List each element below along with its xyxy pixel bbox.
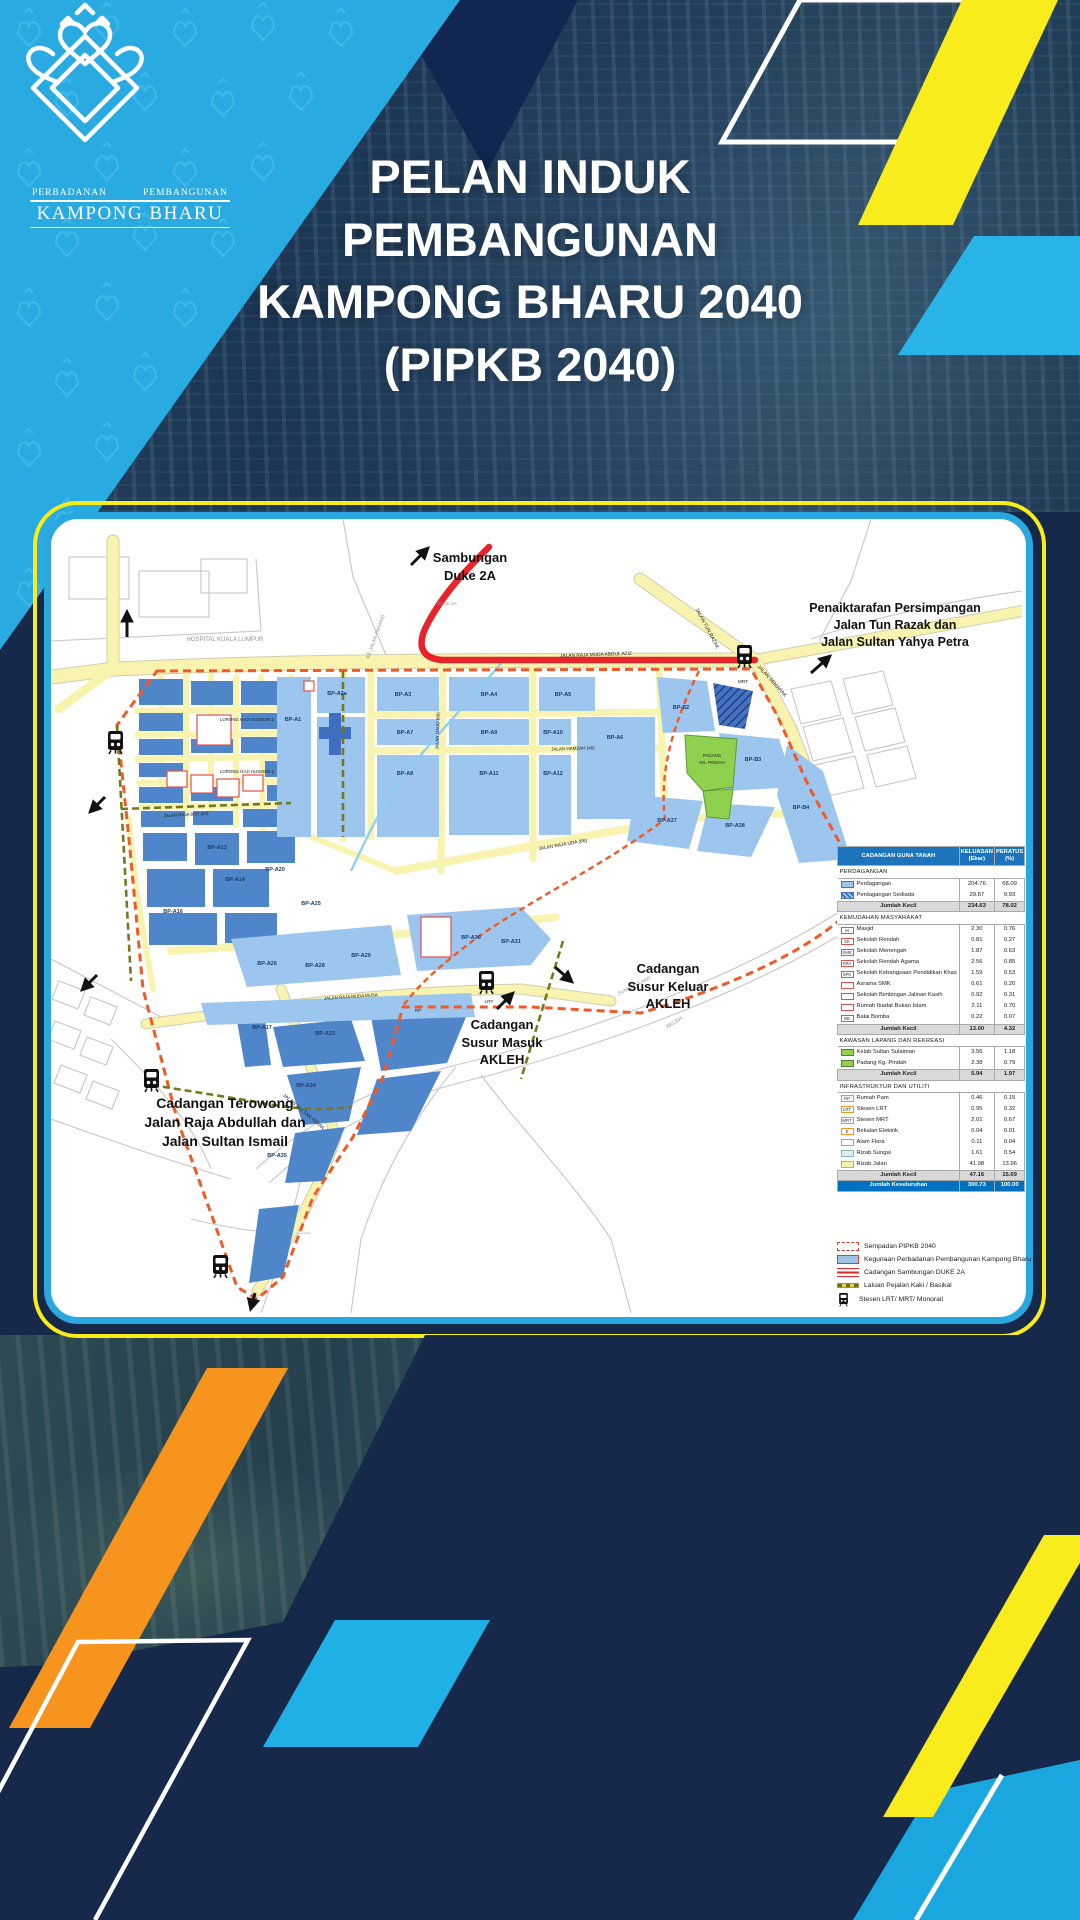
symbol-legend-row: Cadangan Sambungan DUKE 2A — [837, 1268, 1032, 1277]
legend-row: Kelab Sultan Sulaiman3.561.18 — [838, 1047, 1025, 1059]
map-label: BP-A3 — [395, 692, 412, 698]
legend-header-cell: PERATUS(%) — [994, 847, 1024, 866]
symbol-legend-row: Stesen LRT/ MRT/ Monorail — [837, 1293, 1032, 1307]
map-label: PADANG — [703, 753, 722, 758]
legend-row: Padang Kg. Pindah2.380.79 — [838, 1058, 1025, 1070]
map-label: BP-A26 — [257, 961, 277, 967]
legend-header-cell: CADANGAN GUNA TANAH — [838, 847, 960, 866]
legend-swatch — [841, 892, 854, 899]
map-label: KE JALAN PAHANG — [365, 614, 386, 659]
legend-swatch — [841, 881, 854, 888]
legend-swatch: BB — [841, 1015, 854, 1022]
legend-subtotal-row: Jumlah Kecil234.6378.02 — [838, 901, 1025, 911]
symbol-legend: Sempadan PIPKB 2040Kegunaan Perbadanan P… — [837, 1242, 1032, 1311]
pkb-logo-icon — [0, 0, 170, 150]
legend-row: Rizab Sungai1.610.54 — [838, 1148, 1025, 1159]
map-label: BP-A35 — [267, 1153, 287, 1159]
legend-row: Perdagangan204.7668.09 — [838, 878, 1025, 890]
legend-swatch: SMK — [841, 949, 854, 956]
map-label: BP-A13 — [207, 845, 227, 851]
annotation-susur-masuk: Cadangan Susur Masuk AKLEH — [442, 1016, 562, 1069]
map-label: BP-A10 — [543, 730, 563, 736]
legend-row: Alam Flora0.110.04 — [838, 1137, 1025, 1148]
map-label: DUKE 2A — [437, 601, 456, 606]
symbol-legend-row: Kegunaan Perbadanan Pembangunan Kampong … — [837, 1255, 1032, 1264]
symbol-legend-row: Sempadan PIPKB 2040 — [837, 1242, 1032, 1251]
legend-section-title: INFRASTRUKTUR DAN UTILITI — [838, 1080, 1025, 1092]
white-divider-line — [916, 1775, 1002, 1920]
legend-total-row: Jumlah Keseluruhan300.73100.00 — [838, 1181, 1025, 1191]
train-icon — [839, 1293, 848, 1307]
legend-row: SMKSekolah Menengah1.870.63 — [838, 947, 1025, 958]
legend-row: BBBalai Bomba0.220.07 — [838, 1013, 1025, 1025]
legend-subtotal-row: Jumlah Kecil13.004.32 — [838, 1024, 1025, 1034]
map-label: BP-A5 — [555, 692, 572, 698]
map-label: BP-A28 — [305, 963, 325, 969]
legend-row: Rizab Jalan41.9813.96 — [838, 1159, 1025, 1171]
map-label: BP-A33 — [315, 1031, 335, 1037]
legend-swatch — [841, 1049, 854, 1056]
parcels-layer — [139, 677, 851, 1283]
map-label: BP-A7 — [397, 730, 414, 736]
map-label: MRT — [738, 679, 748, 685]
legend-row: LRTStesen LRT0.950.32 — [838, 1104, 1025, 1115]
logo-rule-bottom — [30, 227, 230, 229]
legend-swatch: MRT — [841, 1117, 854, 1124]
legend-swatch — [841, 1060, 854, 1067]
annotation-penaiktarafan: Penaiktarafan Persimpangan Jalan Tun Raz… — [795, 600, 995, 651]
map-label: BP-A38 — [725, 823, 745, 829]
map-label: BP-A2a — [327, 691, 348, 697]
map-label: BP-A1 — [285, 717, 302, 723]
legend-section-title: KAWASAN LAPANG DAN REKREASI — [838, 1034, 1025, 1046]
map-label: BP-B4 — [793, 805, 810, 811]
map-label: BP-A16 — [163, 909, 183, 915]
map-label: BP-A25 — [301, 901, 321, 907]
logo-org-line2: PEMBANGUNAN — [143, 188, 228, 198]
map-label: RP — [415, 1008, 421, 1013]
legend-header-cell: KELUASAN(Ekar) — [959, 847, 994, 866]
map-label: HOSPITAL KUALA LUMPUR — [186, 637, 264, 643]
logo-org-name: KAMPONG BHARU — [30, 203, 230, 225]
legend-row: SPKSekolah Kebangsaan Pendidikan Khas1.5… — [838, 969, 1025, 980]
map-label: BP-A31 — [501, 939, 521, 945]
legend-header-row: CADANGAN GUNA TANAHKELUASAN(Ekar)PERATUS… — [838, 847, 1025, 866]
map-label: BP-A30 — [461, 935, 481, 941]
map-label: BP-A11 — [479, 771, 498, 777]
background-photo-bottom — [0, 1335, 660, 1667]
legend-swatch — [841, 1139, 854, 1146]
legend-swatch: E — [841, 1128, 854, 1135]
cyan-corner-shape — [853, 1760, 1080, 1920]
legend-swatch — [841, 1150, 854, 1157]
legend-swatch — [841, 1161, 854, 1168]
legend-row: RPRumah Pam0.460.15 — [838, 1093, 1025, 1105]
legend-row: EBekalan Elektrik0.040.01 — [838, 1126, 1025, 1137]
map-label: BP-A29 — [351, 953, 371, 959]
map-label: BP-A12 — [543, 771, 563, 777]
logo-rule-top — [30, 200, 230, 202]
map-label: BP-A8 — [397, 771, 414, 777]
legend-row: MRTStesen MRT2.010.67 — [838, 1115, 1025, 1126]
legend-row: Sekolah Bimbingan Jalinan Kasih0.920.31 — [838, 991, 1025, 1002]
land-use-legend-table: CADANGAN GUNA TANAHKELUASAN(Ekar)PERATUS… — [837, 846, 1025, 1192]
map-label: BP-A34 — [296, 1083, 317, 1089]
legend-swatch: RP — [841, 1095, 854, 1102]
map-label: KG. PINDAH — [699, 760, 724, 765]
logo-text: PERBADANAN PEMBANGUNAN KAMPONG BHARU — [30, 188, 230, 229]
legend-section-title: PERDAGANGAN — [838, 866, 1025, 878]
legend-section-title: KEMUDAHAN MASYARAKAT — [838, 912, 1025, 924]
annotation-terowong: Cadangan Terowong Jalan Raja Abdullah da… — [115, 1094, 335, 1151]
legend-row: Perdagangan Sediada29.879.93 — [838, 890, 1025, 902]
legend-swatch — [841, 982, 854, 989]
logo-org-line1: PERBADANAN — [32, 188, 107, 198]
pkb-symbol — [837, 1255, 859, 1264]
map-label: LORONG HAJI HUSSEIN 1 — [220, 769, 275, 774]
map-label: BP-A20 — [265, 867, 285, 873]
white-outline-parallelogram-bottom — [0, 1640, 248, 1920]
legend-subtotal-row: Jumlah Kecil47.1615.69 — [838, 1171, 1025, 1181]
poster-page: PERBADANAN PEMBANGUNAN KAMPONG BHARU PEL… — [0, 0, 1080, 1920]
legend-row: SRASekolah Rendah Agama2.560.85 — [838, 958, 1025, 969]
map-label: LORONG HAJI HUSSEIN 2 — [220, 717, 275, 722]
legend-row: MMasjid2.300.76 — [838, 924, 1025, 936]
pejalan-symbol — [837, 1283, 859, 1288]
cyan-parallelogram-bottom — [263, 1620, 490, 1747]
annotation-susur-keluar: Cadangan Susur Keluar AKLEH — [608, 960, 728, 1013]
legend-row: SKSekolah Rendah0.810.27 — [838, 936, 1025, 947]
map-label: BP-B3 — [745, 757, 762, 763]
map-label: AKLEH — [665, 1016, 684, 1030]
legend-swatch: LRT — [841, 1106, 854, 1113]
map-label: BP-A6 — [607, 735, 624, 741]
legend-swatch: SRA — [841, 960, 854, 967]
annotation-sambungan-duke2a: Sambungan Duke 2A — [400, 549, 540, 584]
legend-subtotal-row: Jumlah Kecil5.941.97 — [838, 1070, 1025, 1080]
legend-swatch: SK — [841, 938, 854, 945]
boundary-symbol — [837, 1242, 859, 1251]
legend-swatch: M — [841, 927, 854, 934]
legend-swatch — [841, 1004, 854, 1011]
legend-row: Asrama SMK0.610.20 — [838, 980, 1025, 991]
duke-symbol — [837, 1268, 859, 1277]
map-label: BP-A14 — [225, 877, 246, 883]
map-label: BP-B2 — [673, 705, 690, 711]
map-label: BP-A17 — [252, 1025, 272, 1031]
legend-row: Rumah Ibadat Bukan Islam2.110.70 — [838, 1002, 1025, 1013]
symbol-legend-row: Laluan Pejalan Kaki / Basikal — [837, 1282, 1032, 1289]
map-label: LRT — [485, 999, 494, 1005]
map-label: BP-A37 — [657, 818, 677, 824]
legend-swatch — [841, 993, 854, 1000]
map-label: BP-A4 — [481, 692, 498, 698]
yellow-band-bottom — [883, 1535, 1080, 1817]
legend-swatch: SPK — [841, 971, 854, 978]
poster-title: PELAN INDUK PEMBANGUNAN KAMPONG BHARU 20… — [250, 146, 810, 396]
map-label: BP-A9 — [481, 730, 498, 736]
